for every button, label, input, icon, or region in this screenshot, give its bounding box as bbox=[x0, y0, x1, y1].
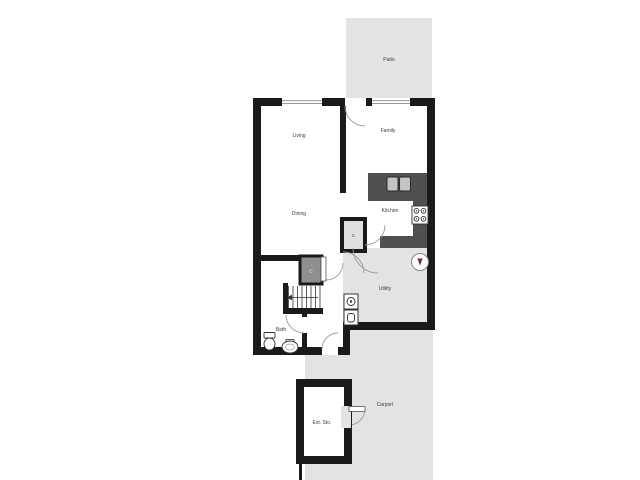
living-label: Living bbox=[292, 133, 305, 139]
laundry-appliances bbox=[344, 294, 358, 325]
hall-closet-door-icon bbox=[326, 263, 343, 280]
family-window-gap bbox=[372, 98, 410, 106]
living-window-gap bbox=[282, 98, 322, 106]
water-heater-icon bbox=[412, 254, 429, 271]
wall-stairs-bottom bbox=[283, 308, 323, 314]
family-label: Family bbox=[381, 128, 396, 134]
wall-bath-hall-stub bbox=[302, 314, 307, 317]
bath-sink-icon bbox=[282, 340, 298, 354]
family-entry-door-icon bbox=[345, 106, 365, 126]
toilet-icon bbox=[264, 333, 275, 351]
top-wall-openings bbox=[282, 98, 410, 106]
ext-storage-label: Ext. Sto. bbox=[313, 420, 332, 426]
wall-dining-hall bbox=[253, 255, 303, 261]
dryer-icon bbox=[344, 310, 358, 325]
wall-left bbox=[253, 98, 261, 355]
patio-label: Patio bbox=[383, 57, 395, 63]
front-door-icon bbox=[322, 333, 338, 349]
dining-label: Dining bbox=[292, 211, 306, 217]
carport-area-upper bbox=[347, 330, 433, 357]
carport-label: Carport bbox=[377, 402, 394, 408]
floorplan-canvas: Patio Living Family Dining Kitchen Utili… bbox=[0, 0, 640, 480]
stove-icon bbox=[412, 206, 428, 224]
property-line bbox=[299, 460, 302, 480]
wall-jog bbox=[343, 325, 350, 352]
wall-living-family-divider bbox=[340, 106, 346, 193]
bath-label: Bath bbox=[276, 327, 287, 333]
bath-door-icon bbox=[286, 315, 304, 333]
utility-label: Utility bbox=[379, 286, 392, 292]
counter-bottom bbox=[380, 236, 427, 248]
kitchen-label: Kitchen bbox=[382, 208, 399, 214]
storage-door-leaf bbox=[349, 407, 365, 412]
stairs-up-icon bbox=[287, 286, 321, 308]
hall-closet-door-leaf bbox=[321, 257, 326, 281]
family-door-gap bbox=[345, 98, 366, 106]
